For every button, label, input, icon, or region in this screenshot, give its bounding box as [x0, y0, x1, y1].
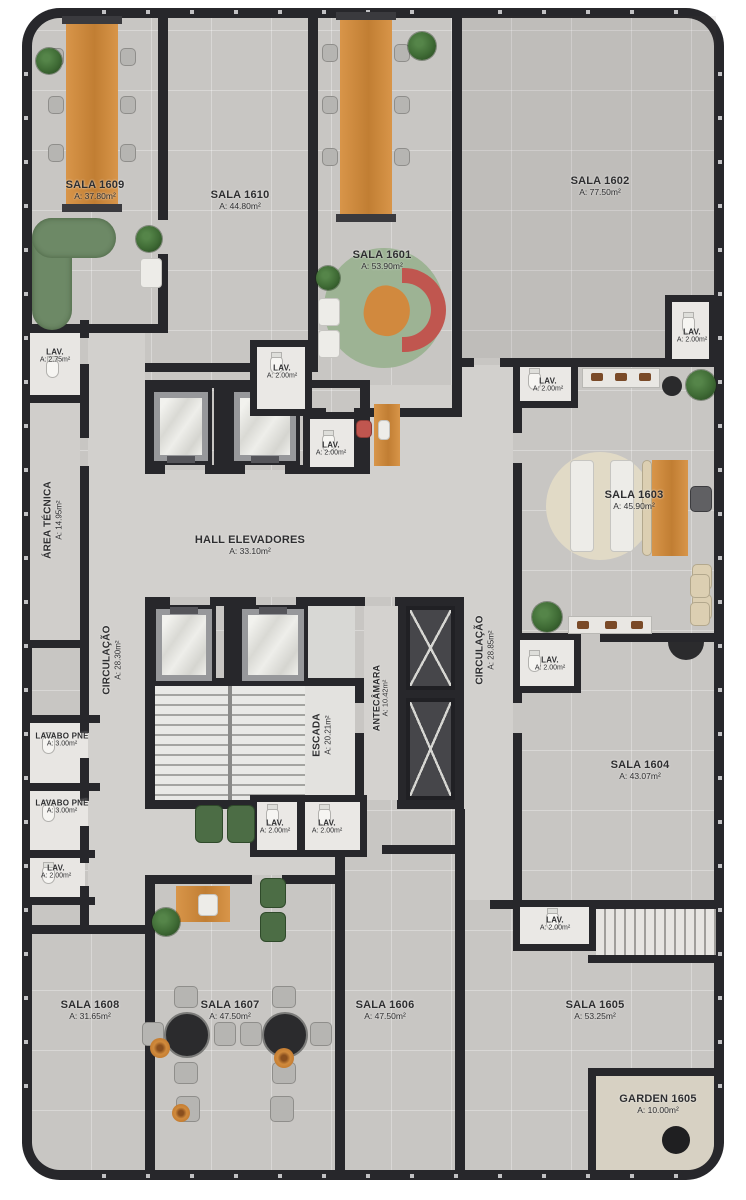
room-label-garden-1605: GARDEN 1605A: 10.00m²	[619, 1093, 696, 1115]
label-lavabo-pne-2: LAVABO PNEA: 3.00m²	[35, 798, 88, 815]
wall	[80, 826, 89, 863]
label-antecamara: ANTECÂMARAA: 10.42m²	[372, 665, 391, 732]
wall	[513, 733, 522, 900]
wall	[452, 8, 462, 417]
wall	[400, 690, 455, 698]
elevator-landing-floor	[308, 605, 355, 685]
plant-icon	[532, 602, 562, 632]
office-chair	[120, 144, 136, 162]
room-label-sala-1605: SALA 1605A: 53.25m²	[566, 999, 625, 1021]
office-chair	[394, 148, 410, 166]
lav-label: LAV.A: 2.00m²	[312, 818, 342, 835]
elevator-cab	[248, 615, 298, 675]
wall	[335, 845, 345, 1172]
wall	[588, 1068, 716, 1076]
wall	[224, 597, 238, 687]
label-hall-elevadores: HALL ELEVADORESA: 33.10m²	[195, 534, 305, 556]
sofa-green	[32, 218, 116, 258]
desk-end	[62, 204, 122, 212]
chair-red	[356, 420, 372, 438]
office-chair	[120, 96, 136, 114]
wall	[80, 886, 89, 925]
wall	[80, 320, 89, 338]
office-chair	[322, 96, 338, 114]
chair	[310, 1022, 332, 1046]
office-chair	[198, 894, 218, 916]
plant-icon	[408, 32, 436, 60]
room-label-sala-1602: SALA 1602A: 77.50m²	[571, 175, 630, 197]
elevator-cab	[160, 398, 202, 455]
plant-icon	[36, 48, 62, 74]
flower-pot-icon	[150, 1038, 170, 1058]
wall	[145, 875, 252, 884]
elevator-door	[259, 607, 287, 614]
chair	[270, 1096, 294, 1122]
elevator-door	[251, 456, 279, 463]
label-circulacao-right: CIRCULAÇÃOA: 28.85m²	[475, 615, 496, 684]
wall	[455, 900, 462, 909]
plant-icon	[686, 370, 716, 400]
room-label-sala-1601: SALA 1601A: 53.90m²	[353, 249, 412, 271]
elevator-car	[150, 388, 212, 465]
window-ticks-bottom	[62, 1174, 682, 1178]
plant-icon	[152, 908, 180, 936]
stair-stringer	[228, 686, 232, 800]
label-escada: ESCADAA: 20.21m²	[312, 713, 333, 756]
office-chair	[322, 44, 338, 62]
wall	[355, 678, 364, 703]
garden-floor	[592, 1068, 714, 1170]
wall	[297, 795, 305, 857]
room-label-sala-1607: SALA 1607A: 47.50m²	[201, 999, 260, 1021]
room-label-sala-1606: SALA 1606A: 47.50m²	[356, 999, 415, 1021]
wall	[30, 925, 145, 934]
side-table-black	[662, 376, 682, 396]
armchair	[690, 574, 710, 598]
wall	[455, 809, 465, 1172]
desk	[340, 18, 392, 214]
chair	[240, 1022, 262, 1046]
wall	[205, 465, 245, 474]
armchair-green	[260, 878, 286, 908]
wall	[452, 358, 474, 367]
wall	[455, 597, 464, 809]
wall	[308, 8, 318, 368]
floor-plan-page: SALA 1609A: 37.80m² SALA 1610A: 44.80m² …	[0, 0, 746, 1200]
wall	[382, 845, 455, 854]
stairs-1605	[596, 909, 716, 955]
elevator-car	[152, 605, 216, 685]
wall	[30, 715, 100, 723]
lav-label: LAV.A: 2.00m²	[535, 655, 565, 672]
chair	[272, 986, 296, 1008]
desk-end	[62, 16, 122, 24]
plant-icon	[136, 226, 162, 252]
room-label-sala-1610: SALA 1610A: 44.80m²	[211, 189, 270, 211]
lav-label: LAV.A: 2.00m²	[677, 327, 707, 344]
wall	[397, 800, 455, 809]
armchair-green	[195, 805, 223, 843]
shaft-x	[406, 698, 455, 800]
room-label-sala-1608: SALA 1608A: 31.65m²	[61, 999, 120, 1021]
flower-pot-icon	[172, 1104, 190, 1122]
desk-end	[336, 12, 396, 20]
lav-label: LAV.A: 2.75m²	[40, 347, 70, 364]
window-ticks-left	[24, 58, 28, 1128]
lav-label: LAV.A: 2.00m²	[260, 818, 290, 835]
room-label-sala-1609: SALA 1609A: 37.80m²	[66, 179, 125, 201]
label-circulacao-left: CIRCULAÇÃOA: 28.30m²	[102, 625, 123, 694]
wall	[214, 380, 230, 474]
wall	[80, 364, 89, 438]
lav-label: LAV.A: 2.00m²	[533, 376, 563, 393]
wall	[588, 1068, 596, 1172]
window-ticks-right	[718, 58, 722, 1128]
room-label-sala-1604: SALA 1604A: 43.07m²	[611, 759, 670, 781]
credenza	[582, 368, 660, 388]
wall	[145, 465, 165, 474]
office-chair	[48, 96, 64, 114]
wall	[398, 597, 406, 809]
wall	[158, 8, 168, 220]
armchair-green	[227, 805, 255, 843]
desk-paper	[378, 420, 390, 440]
label-lavabo-pne-1: LAVABO PNEA: 3.00m²	[35, 731, 88, 748]
office-chair	[48, 144, 64, 162]
room-label-sala-1603: SALA 1603A: 45.90m²	[605, 489, 664, 511]
plant-icon	[316, 266, 340, 290]
lounge-chair	[140, 258, 162, 288]
chair	[214, 1022, 236, 1046]
wall	[30, 783, 100, 791]
armchair	[690, 602, 710, 626]
label-area-tecnica: ÁREA TÉCNICAA: 14.95m²	[43, 481, 64, 559]
desk	[66, 22, 118, 204]
floor-plan: SALA 1609A: 37.80m² SALA 1610A: 44.80m² …	[22, 8, 724, 1180]
lav-label: LAV.A: 2.00m²	[316, 440, 346, 457]
shaft-x	[406, 606, 455, 690]
lav-label: LAV.A: 2.00m²	[41, 863, 71, 880]
lounge-chair	[318, 330, 340, 358]
wall	[355, 733, 364, 800]
armchair-green	[260, 912, 286, 942]
chair	[174, 1062, 198, 1084]
elevator-door	[167, 456, 195, 463]
lav-label: LAV.A: 2.00m²	[267, 363, 297, 380]
wall	[80, 466, 89, 733]
office-chair	[322, 148, 338, 166]
chair	[174, 986, 198, 1008]
lounge-chair	[318, 298, 340, 326]
wall	[80, 758, 89, 801]
office-chair	[120, 48, 136, 66]
elevator-car	[238, 605, 308, 685]
elevator-cab	[162, 615, 206, 675]
elevator-door	[170, 607, 198, 614]
desk	[570, 460, 594, 552]
office-chair	[690, 486, 712, 512]
garden-tree-icon	[662, 1126, 690, 1154]
wall	[600, 633, 716, 642]
office-chair	[394, 96, 410, 114]
wall	[588, 955, 716, 963]
flower-pot-icon	[274, 1048, 294, 1068]
desk-end	[336, 214, 396, 222]
lav-label: LAV.A: 2.00m²	[540, 915, 570, 932]
credenza	[568, 616, 652, 634]
